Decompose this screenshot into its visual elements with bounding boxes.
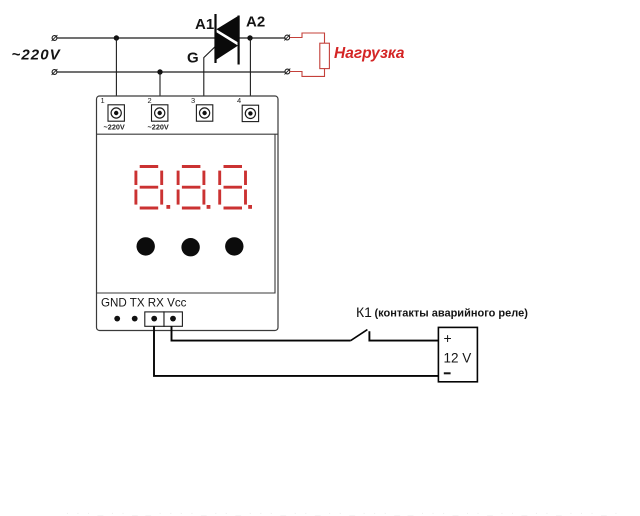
svg-text:12 V: 12 V (444, 351, 472, 366)
svg-text:1: 1 (101, 96, 105, 105)
svg-text:A1: A1 (195, 16, 214, 33)
svg-text:+: + (444, 330, 452, 346)
svg-text:2: 2 (148, 96, 152, 105)
svg-text:~220V: ~220V (148, 122, 169, 131)
svg-text:~220V: ~220V (12, 46, 62, 63)
svg-text:(контакты аварийного реле): (контакты аварийного реле) (375, 308, 529, 320)
svg-text:. . . _ . . _ _ . . . . _ . .: . . . _ . . _ _ . . . . _ . . _ . . . _ … (66, 506, 620, 516)
svg-text:К1: К1 (356, 304, 372, 320)
svg-text:~220V: ~220V (104, 122, 125, 131)
svg-text:Нагрузка: Нагрузка (334, 45, 405, 62)
svg-text:4: 4 (237, 96, 241, 105)
svg-text:GND TX RX Vcc: GND TX RX Vcc (101, 297, 187, 310)
svg-text:3: 3 (191, 96, 195, 105)
svg-text:G: G (187, 50, 199, 67)
svg-text:A2: A2 (246, 14, 265, 31)
